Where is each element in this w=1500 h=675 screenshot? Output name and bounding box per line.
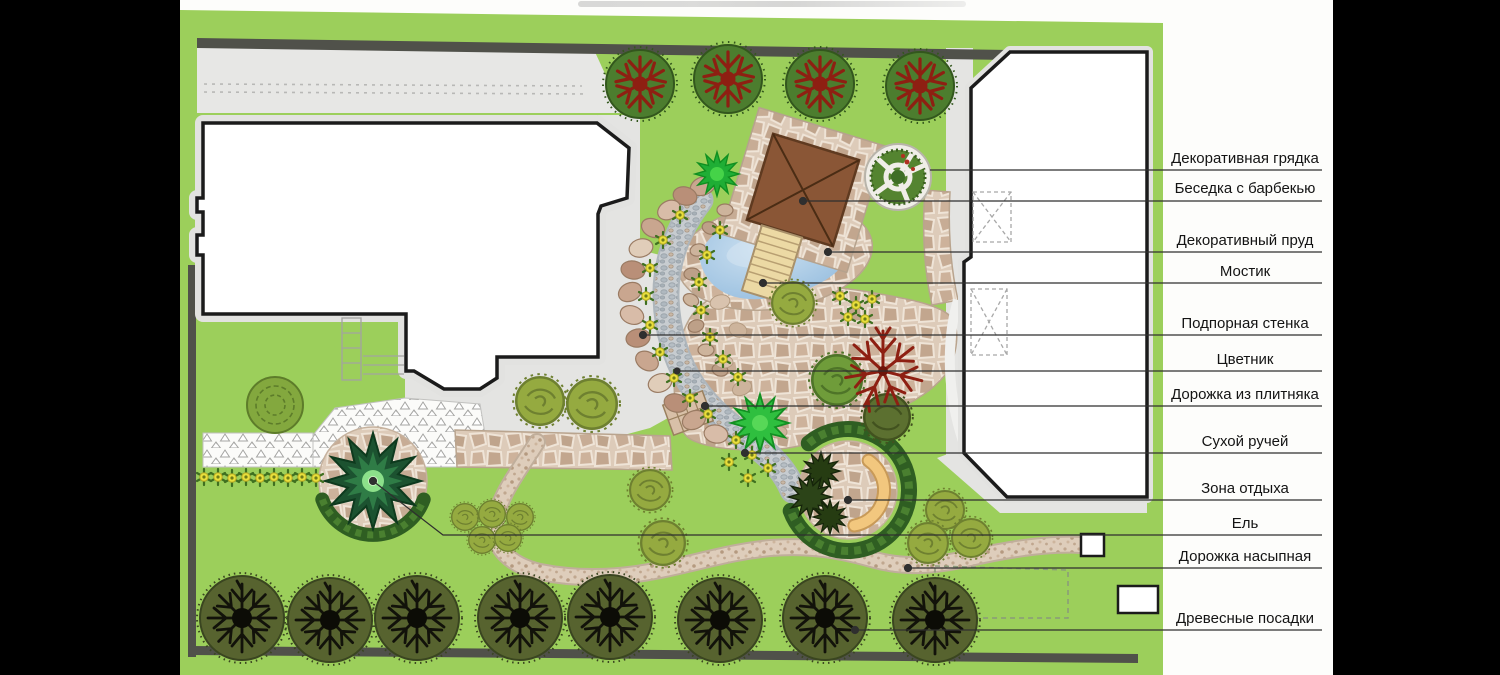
rest-area (788, 429, 909, 551)
legend-label-flagstone-path: Дорожка из плитняка (1155, 385, 1335, 405)
legend-label-spruce: Ель (1155, 514, 1335, 534)
garden-plan-svg (180, 0, 1333, 675)
legend-label-flower-garden: Цветник (1155, 350, 1335, 370)
cropped-title-fragment (578, 1, 966, 7)
legend-label-gazebo: Беседка с барбекью (1155, 179, 1335, 199)
legend-label-pond: Декоративный пруд (1155, 231, 1335, 251)
legend-label-decorative-bed: Декоративная грядка (1155, 149, 1335, 169)
screenshot: Декоративная грядка Беседка с барбекью Д… (0, 0, 1500, 675)
legend-label-dry-stream: Сухой ручей (1155, 432, 1335, 452)
path-end-pad (1081, 534, 1104, 556)
legend-label-rest-area: Зона отдыха (1155, 479, 1335, 499)
legend-label-tree-plantings: Древесные посадки (1155, 609, 1335, 629)
decorative-bed (865, 144, 931, 210)
legend-label-bridge: Мостик (1155, 262, 1335, 282)
side-pad (1118, 586, 1158, 613)
building-right (964, 52, 1147, 497)
legend-label-gravel-path: Дорожка насыпная (1155, 547, 1335, 567)
street-road (197, 47, 623, 113)
plan-canvas: Декоративная грядка Беседка с барбекью Д… (180, 0, 1333, 675)
legend-label-retaining-wall: Подпорная стенка (1155, 314, 1335, 334)
